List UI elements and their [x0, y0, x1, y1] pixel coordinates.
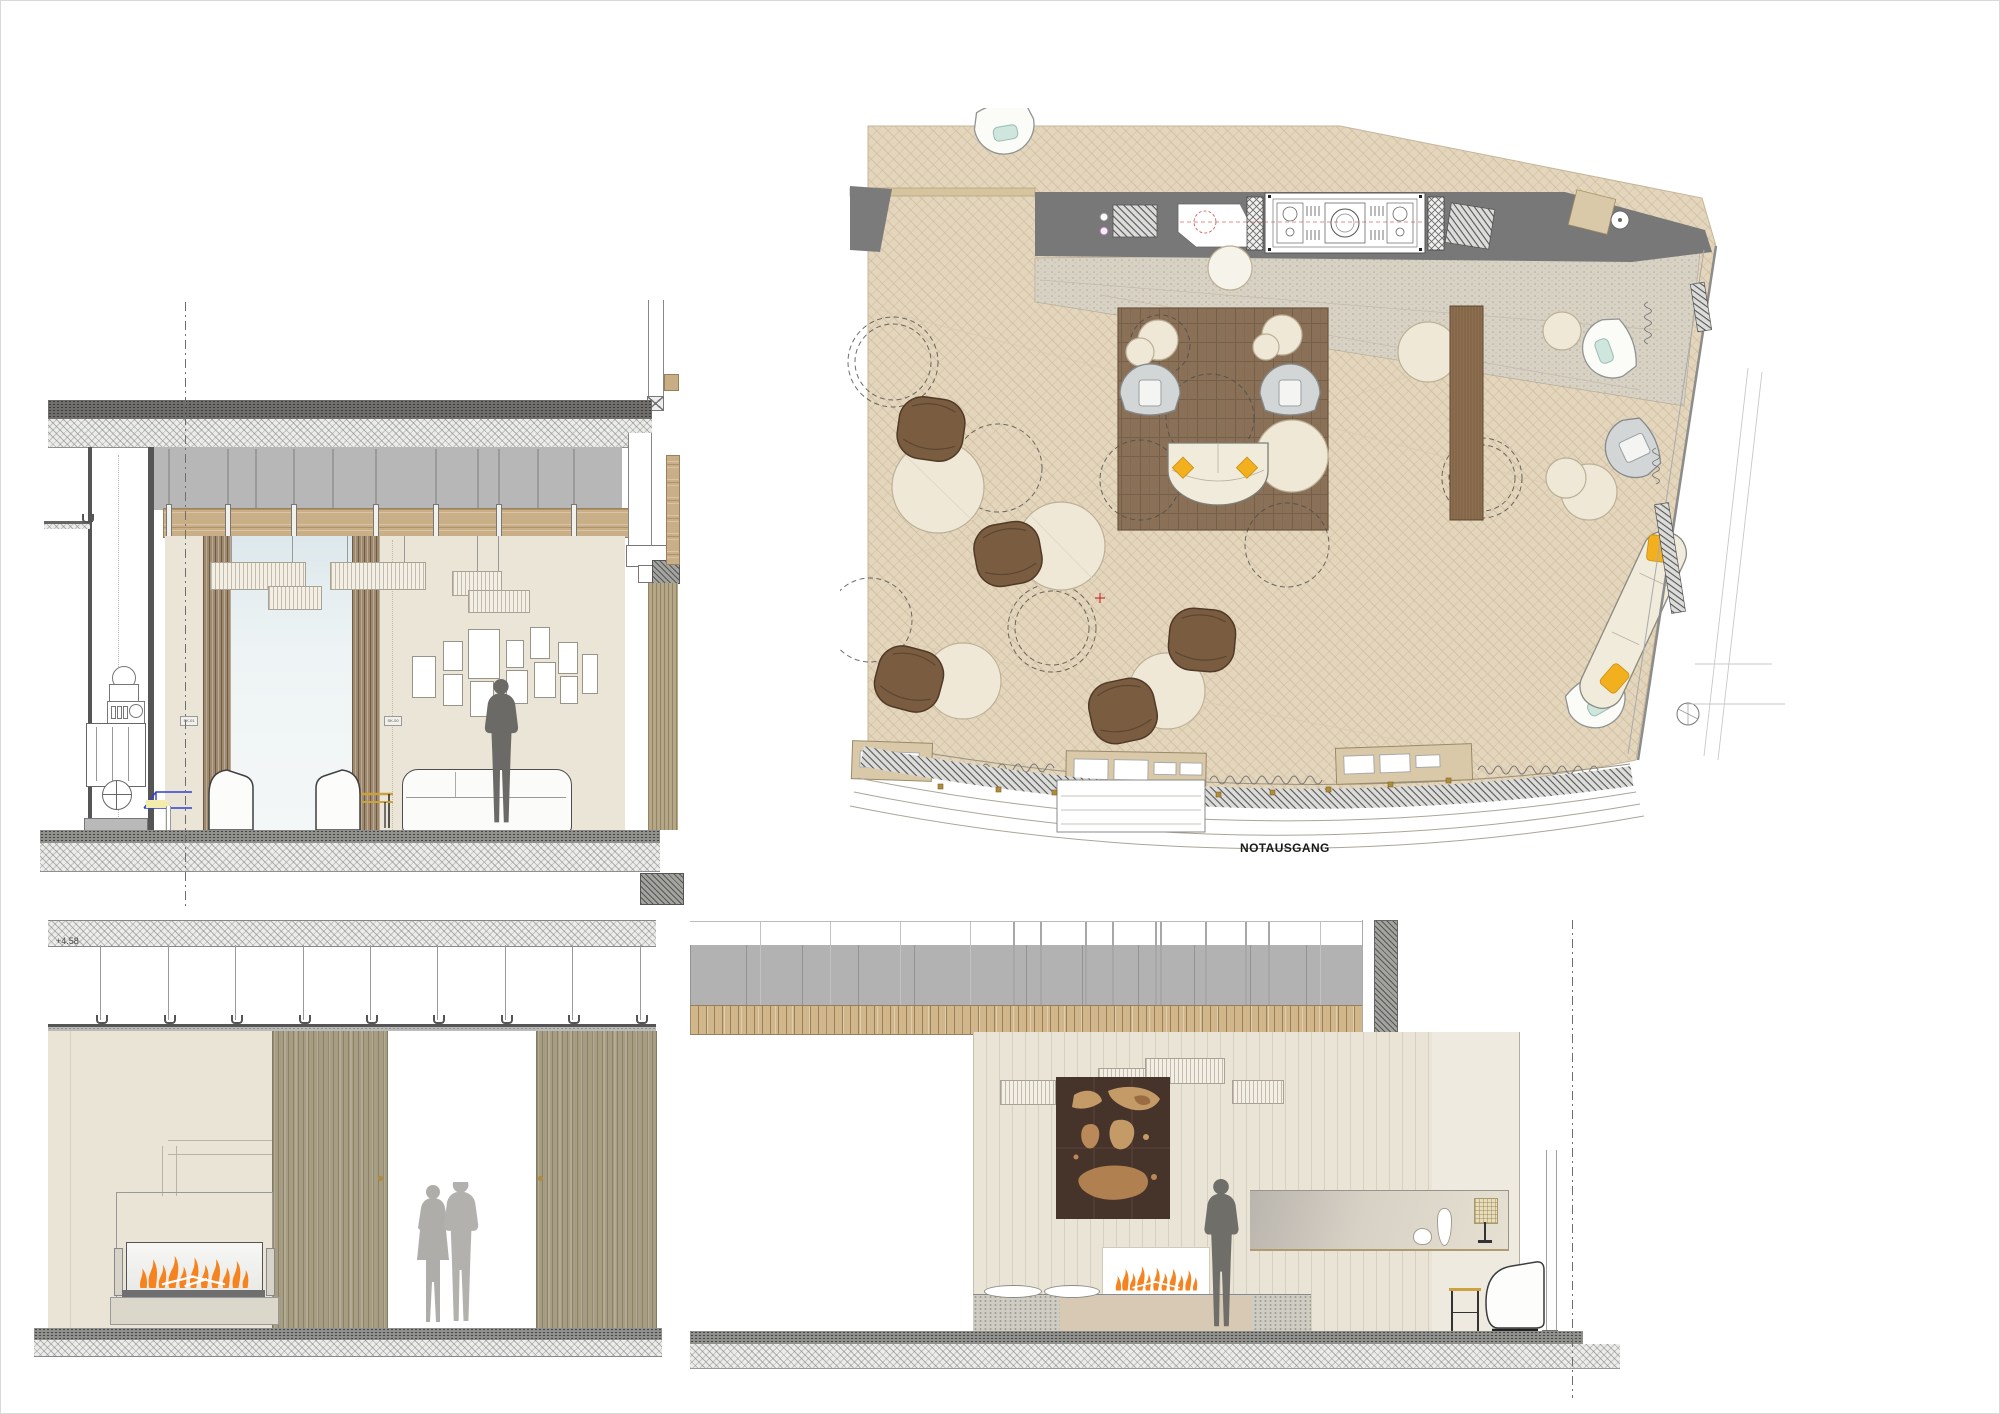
- world-map-artwork: [1056, 1077, 1170, 1219]
- pendant-light: [330, 562, 426, 590]
- hanger-rod: [332, 449, 334, 510]
- couple-silhouette: [415, 1182, 479, 1328]
- elevation-floor-screed: [690, 1344, 1620, 1369]
- control-slot: [111, 706, 116, 719]
- hanger-rod: [293, 449, 295, 510]
- wall-edge: [973, 1032, 974, 1332]
- roof-slab: [48, 400, 652, 419]
- pendant-rod: [498, 536, 499, 572]
- elevation-slab: [48, 920, 656, 947]
- pendant-rod: [347, 536, 348, 563]
- right-wall-column: [628, 433, 652, 545]
- section-marker-tag: SK-00: [384, 716, 402, 726]
- equipment-cabinet: [86, 723, 146, 787]
- bench-highlight: [146, 800, 168, 808]
- ceiling-band: [690, 945, 1362, 1005]
- hearth-cushion: [984, 1285, 1042, 1298]
- hanger-rod: [537, 449, 539, 510]
- track-rail-hatch: [44, 524, 90, 529]
- fireplace-plinth: [110, 1297, 279, 1325]
- ceiling-rod: [830, 922, 831, 1006]
- wood-console: [1450, 306, 1483, 520]
- elevation-floor: [34, 1328, 662, 1340]
- sliding-wood-panel: [272, 1031, 388, 1328]
- hanger-rod: [303, 945, 304, 1020]
- elevation-floor: [690, 1331, 1583, 1344]
- duct-ring-cross: [102, 794, 132, 795]
- hanger-rod: [168, 449, 170, 510]
- display-niche: [1250, 1190, 1509, 1251]
- pendant-light: [1000, 1080, 1056, 1105]
- hanger-rod: [100, 945, 101, 1020]
- parapet-column: [648, 300, 664, 400]
- boundary-line: [1572, 920, 1573, 1398]
- hanger-rod: [227, 449, 229, 510]
- picture-frame: [443, 641, 463, 671]
- door-pull: [378, 1176, 383, 1181]
- wood-beam-band: [163, 508, 634, 538]
- armchairs-and-tables: [203, 762, 399, 832]
- architectural-drawing-sheet: SK-01 SK-00: [0, 0, 2000, 1414]
- picture-frame: [560, 676, 578, 704]
- track-hook: [433, 1015, 445, 1024]
- sliding-wood-panel: [536, 1031, 657, 1328]
- track-hook: [366, 1015, 378, 1024]
- exit-door-bay: [1057, 780, 1205, 832]
- ceiling-rod: [1320, 922, 1321, 1006]
- hanger-rod: [573, 449, 575, 510]
- picture-frame: [558, 642, 578, 674]
- pendant-light: [1232, 1080, 1284, 1104]
- track-hook: [568, 1015, 580, 1024]
- track-hook: [299, 1015, 311, 1024]
- hanger-rod: [477, 449, 479, 510]
- picture-frame: [506, 640, 524, 668]
- table-lamp-stem: [1484, 1222, 1486, 1240]
- hanger-rod: [235, 945, 236, 1020]
- bench-leg: [166, 806, 171, 830]
- hanger-rod: [435, 449, 437, 510]
- side-stool: [1677, 703, 1699, 725]
- level-label: +4.58: [56, 936, 79, 946]
- pendant-rod: [292, 536, 293, 563]
- pendant-rod: [477, 536, 478, 572]
- door-pull: [538, 1176, 543, 1181]
- rug-sofa: [1168, 443, 1268, 505]
- hanger-rod: [437, 945, 438, 1020]
- ceiling-void: [154, 447, 622, 510]
- pendant-light: [268, 586, 322, 610]
- flue-pipe-horizontal: [168, 1140, 280, 1155]
- fireplace-side: [266, 1248, 275, 1296]
- hanger-rod: [255, 449, 257, 510]
- floor-plan: NOTAUSGANG: [840, 108, 1830, 878]
- roof-insulation: [48, 419, 652, 448]
- dimension-lines: [1686, 368, 1785, 760]
- picture-frame: [468, 629, 500, 679]
- ceiling-rod: [900, 922, 901, 1006]
- track-hook: [164, 1015, 176, 1024]
- section-axis-line: [185, 302, 186, 906]
- hanger-rod: [498, 449, 500, 510]
- fire-flames: [130, 1252, 257, 1288]
- side-table-bar: [1451, 1312, 1479, 1313]
- table-lamp-shade: [1474, 1198, 1498, 1224]
- track-hook: [96, 1015, 108, 1024]
- cabinet-slat: [112, 727, 113, 781]
- pendant-rod: [231, 536, 232, 563]
- wood-slat-band: [690, 1005, 1362, 1035]
- picture-frame: [582, 654, 598, 694]
- wall-joint: [70, 1031, 71, 1328]
- fireplace-base: [122, 1290, 265, 1297]
- track-hook: [501, 1015, 513, 1024]
- sofa-seam: [455, 772, 456, 797]
- hearth-cushion: [1044, 1285, 1100, 1298]
- person-silhouette: [1200, 1178, 1242, 1334]
- pendant-light: [468, 590, 530, 613]
- elevation-floor-screed: [34, 1340, 662, 1357]
- section-floor-slab: [40, 830, 660, 843]
- elevation-top-line: [690, 921, 1364, 922]
- duct-ring: [102, 780, 132, 810]
- cabinet-slat: [96, 727, 97, 781]
- hanger-rod: [572, 945, 573, 1020]
- hanger-rod: [370, 945, 371, 1020]
- section-floor-screed: [40, 843, 660, 872]
- control-slot: [123, 706, 128, 719]
- pendant-rod: [404, 536, 405, 563]
- lounge-chair: [1478, 1258, 1548, 1334]
- pier-hatch: [1374, 920, 1398, 1035]
- duct-ring-cross: [116, 780, 117, 810]
- parapet-wood-nub: [664, 374, 679, 391]
- downpipe: [1546, 1150, 1557, 1332]
- section-marker-tag: SK-01: [180, 716, 198, 726]
- control-slot: [117, 706, 122, 719]
- track-hook: [636, 1015, 648, 1024]
- cabinet-slat: [128, 727, 129, 781]
- hanger-rod: [505, 945, 506, 1020]
- hanger-rod: [640, 945, 641, 1020]
- exterior-wood-cladding: [648, 583, 678, 830]
- picture-frame: [530, 627, 550, 659]
- table-lamp-base: [1478, 1240, 1492, 1243]
- picture-frame: [443, 674, 463, 706]
- ceiling-rod: [760, 922, 761, 1006]
- ceiling-rod: [970, 922, 971, 1006]
- hanger-rod: [375, 449, 377, 510]
- cladding-strip: [666, 455, 680, 565]
- picture-frame: [412, 656, 436, 698]
- below-floor-block: [640, 873, 684, 905]
- person-silhouette: [482, 676, 520, 832]
- exit-label: NOTAUSGANG: [1240, 841, 1330, 855]
- picture-frame: [534, 662, 556, 698]
- fireplace-side: [114, 1248, 123, 1296]
- vase-round: [1413, 1228, 1432, 1245]
- track-hook: [82, 514, 94, 523]
- hanger-rod: [168, 945, 169, 1020]
- fire-flames: [1112, 1262, 1200, 1292]
- track-hook: [231, 1015, 243, 1024]
- control-dial: [129, 704, 143, 718]
